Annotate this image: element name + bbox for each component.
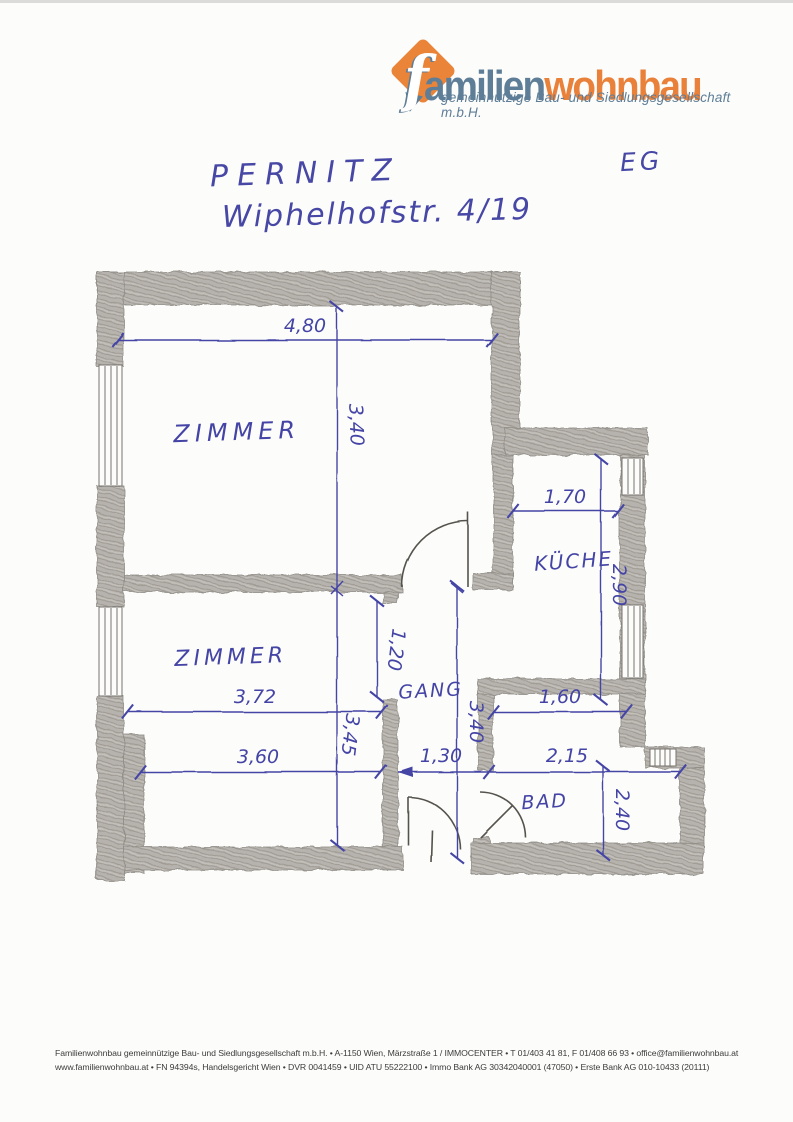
door-leaf-bath [481, 806, 513, 838]
dim-hall-depth: 3,40 [465, 701, 487, 743]
door-mark-entrance [431, 830, 432, 862]
dim-room2-width-bottom: 3,60 [237, 746, 279, 768]
footer-line-2: www.familienwohnbau.at • FN 94394s, Hand… [55, 1060, 760, 1074]
dim-room1-width: 4,80 [284, 315, 326, 337]
door-arc-room1 [402, 521, 468, 587]
room-label-zimmer-1: ZIMMER [172, 416, 301, 448]
dim-bath-niche-width: 1,60 [539, 686, 581, 708]
room-label-zimmer-2: ZIMMER [173, 643, 288, 672]
dim-room2-depth: 3,45 [336, 712, 363, 757]
dim-bath-width: 2,15 [546, 745, 588, 767]
dim-hall-width: 1,30 [420, 745, 462, 767]
dim-kitchen-width: 1,70 [544, 486, 586, 508]
room-label-gang: GANG [398, 678, 464, 703]
letterhead-footer: Familienwohnbau gemeinnützige Bau- und S… [55, 1046, 760, 1074]
dim-room2-width: 3,72 [234, 686, 276, 708]
dim-room1-depth: 3,40 [344, 403, 367, 446]
floorplan-drawing: 4,80 3,40 1,70 2,90 1,20 3,72 3,45 3,40 … [0, 0, 793, 1122]
footer-line-1: Familienwohnbau gemeinnützige Bau- und S… [55, 1046, 760, 1060]
room-label-bad: BAD [521, 790, 569, 814]
dim-bath-depth: 2,40 [611, 789, 633, 831]
scanned-floorplan-page: familienwohnbau gemeinnützige Bau- und S… [0, 0, 793, 1122]
dim-door-opening: 1,20 [382, 627, 409, 672]
dimension-labels: 4,80 3,40 1,70 2,90 1,20 3,72 3,45 3,40 … [234, 315, 633, 831]
door-arc-entrance [408, 797, 460, 849]
